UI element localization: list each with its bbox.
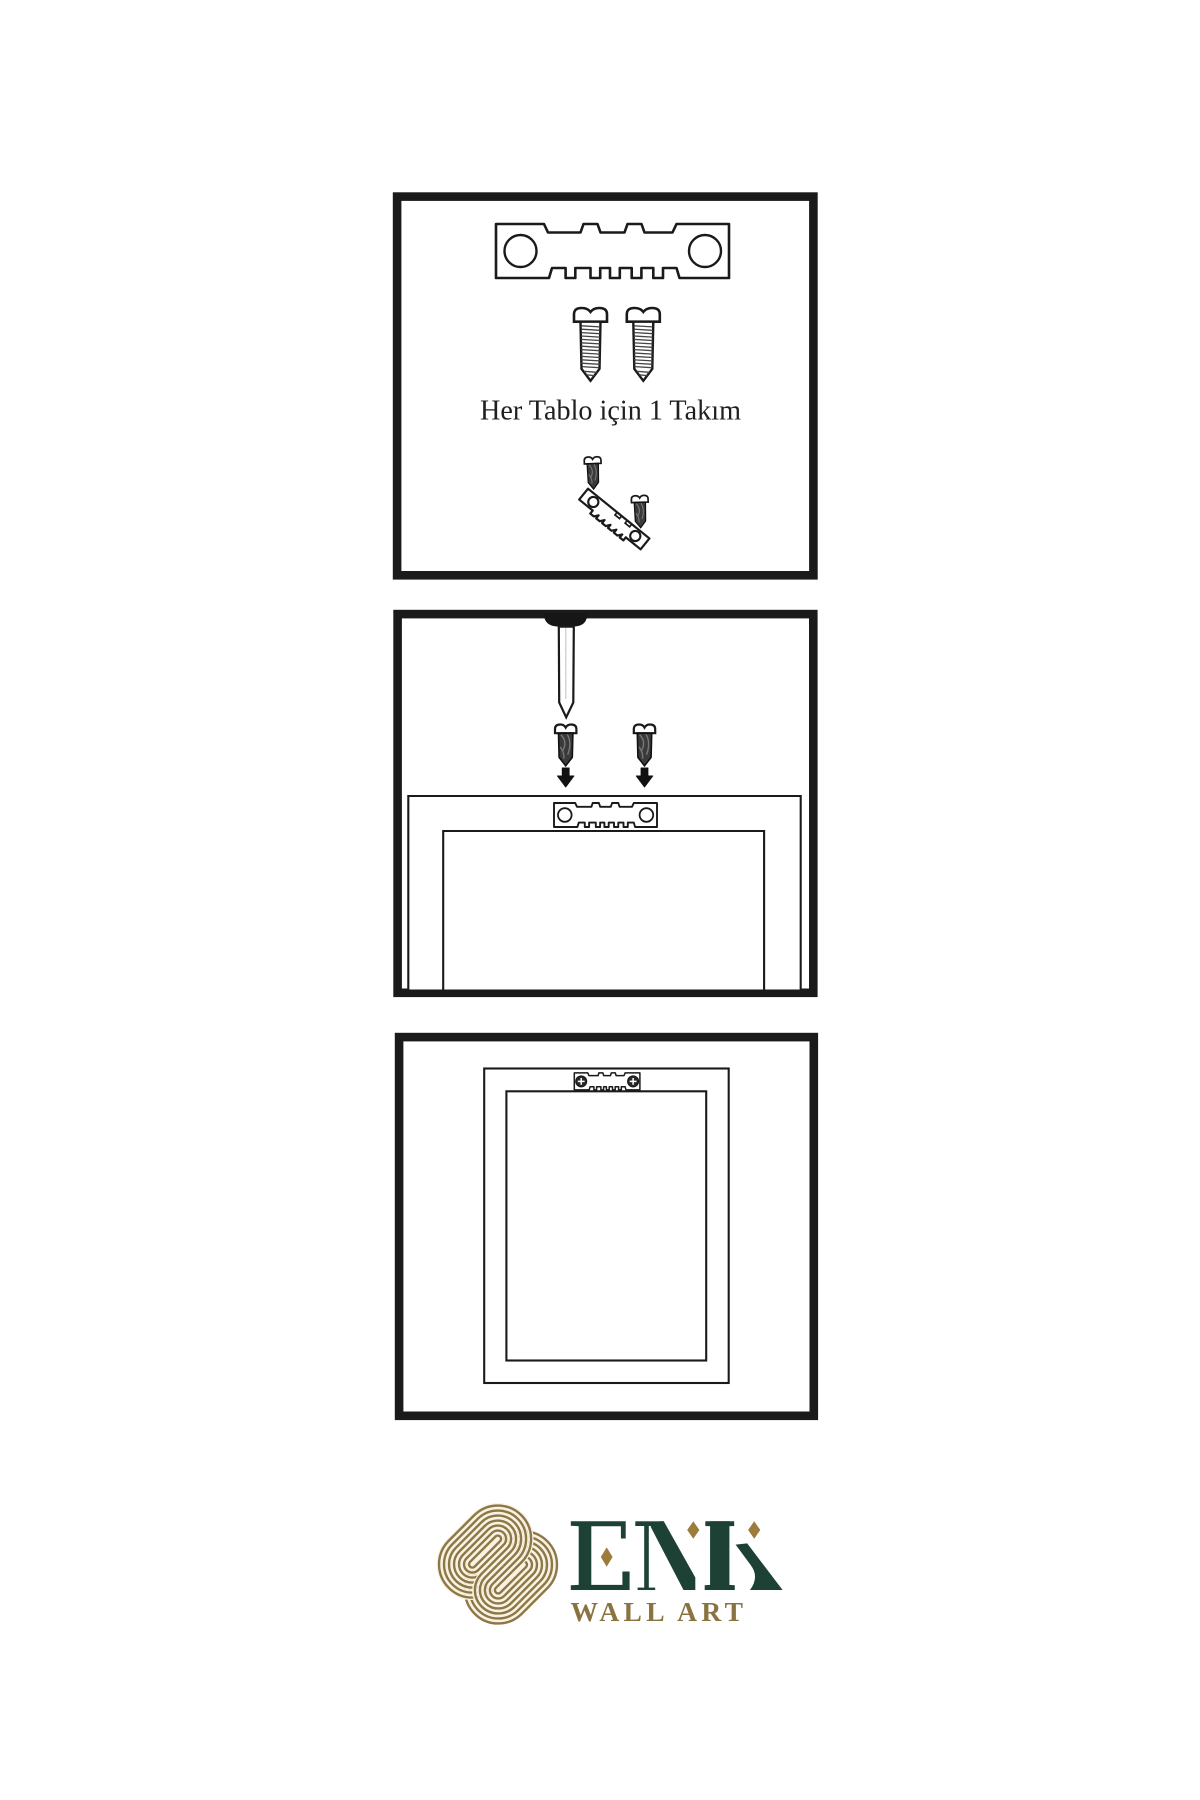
svg-text:Her Tablo için 1 Takım: Her Tablo için 1 Takım — [480, 394, 741, 426]
